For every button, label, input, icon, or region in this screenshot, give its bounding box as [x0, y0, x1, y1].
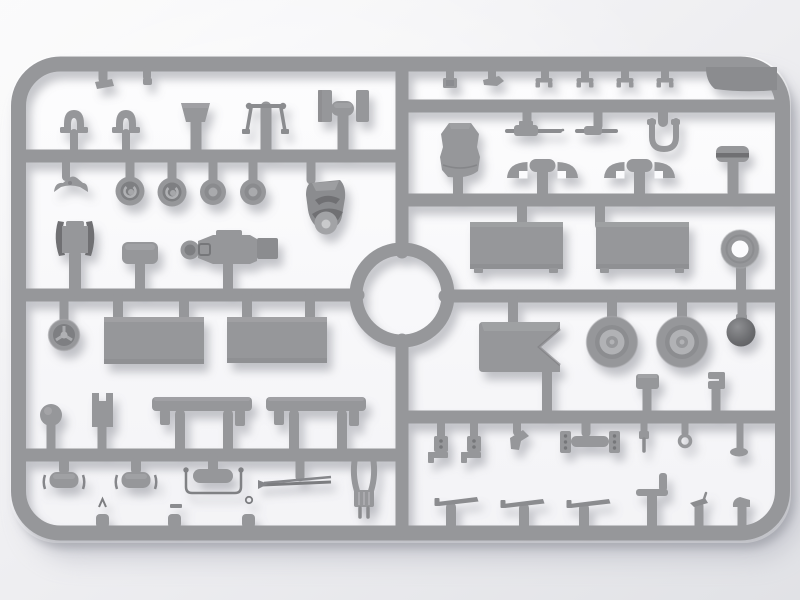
frame-stub-with-nub	[143, 70, 152, 85]
corner-blanking-plate	[706, 67, 777, 91]
sprue-photo	[0, 0, 800, 600]
photo-stage	[0, 0, 800, 600]
